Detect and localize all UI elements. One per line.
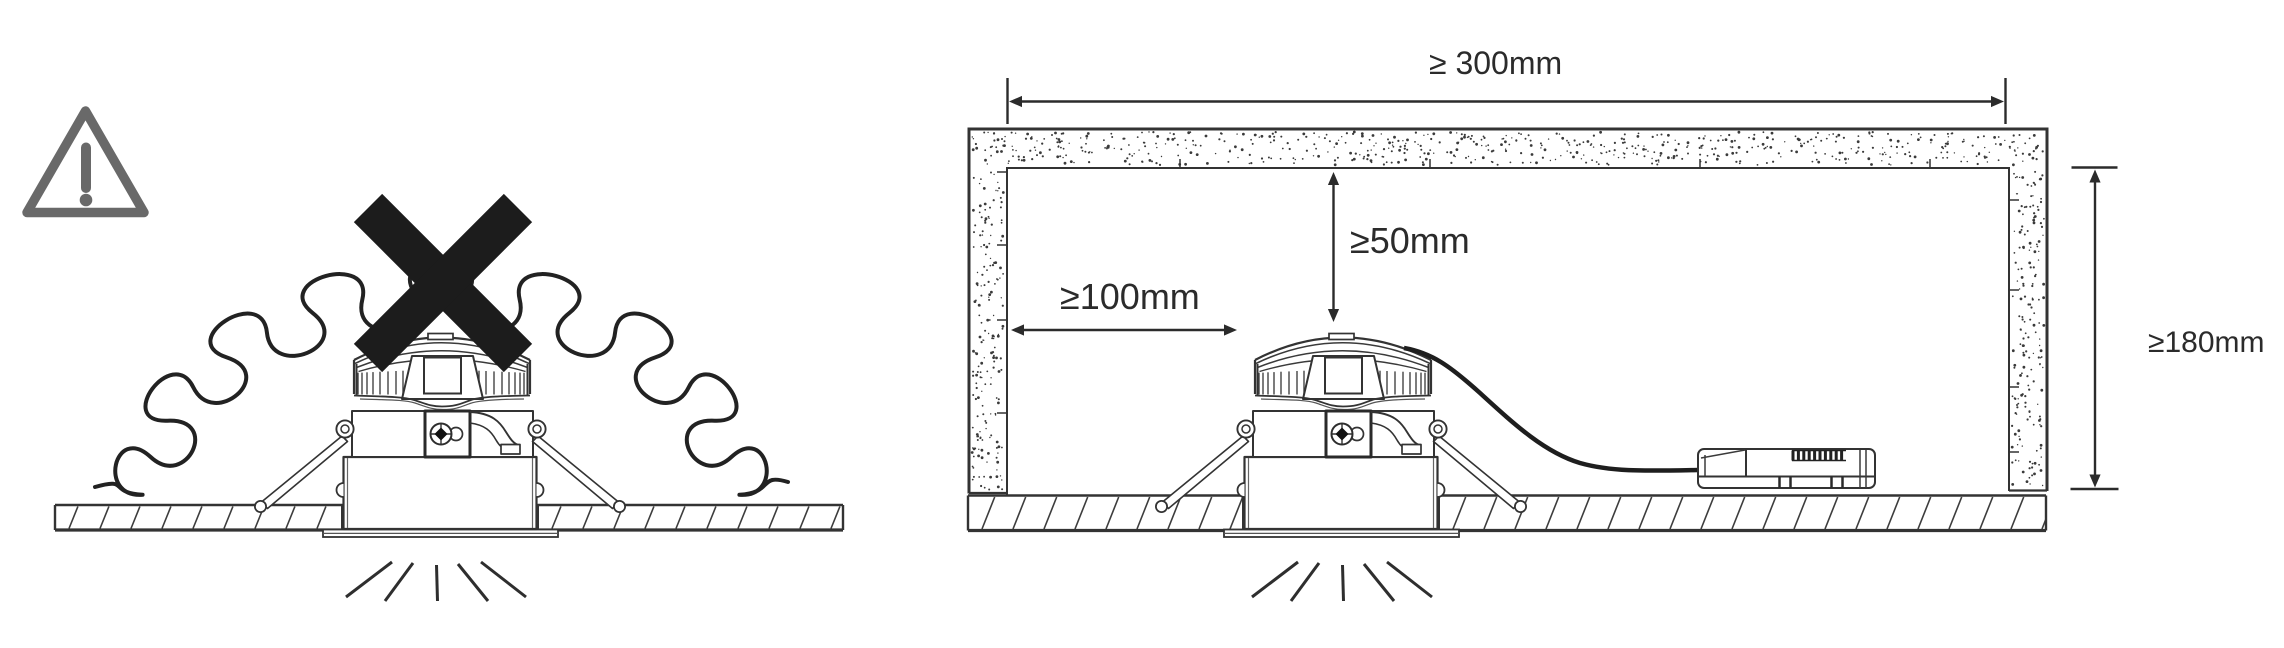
svg-text:≥180mm: ≥180mm	[2148, 326, 2265, 359]
svg-text:≥ 300mm: ≥ 300mm	[1429, 45, 1562, 81]
svg-text:≥50mm: ≥50mm	[1350, 220, 1470, 261]
svg-text:≥100mm: ≥100mm	[1060, 276, 1200, 317]
